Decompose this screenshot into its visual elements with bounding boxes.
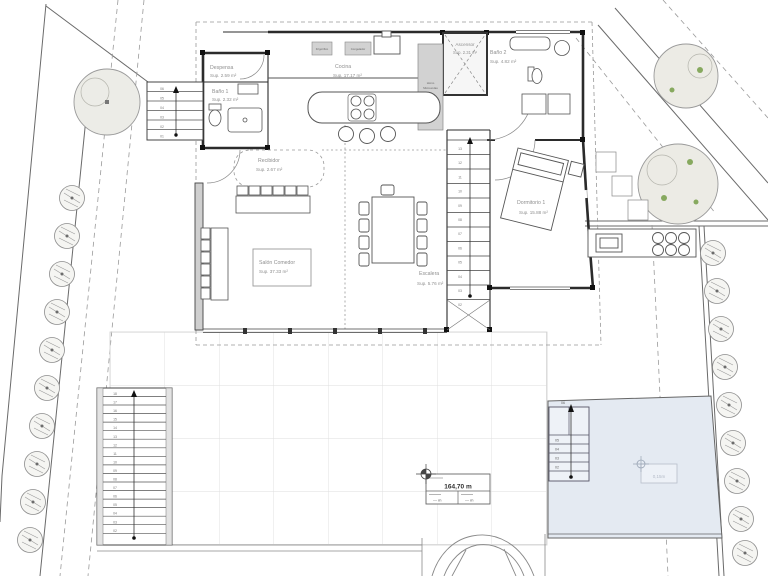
kitchen-island [308,92,440,144]
svg-text:04: 04 [458,275,462,279]
shrub-icon [25,452,50,477]
shrub-icon [713,355,738,380]
shrub-icon [721,431,746,456]
entry-stairs: 060504030201 [147,82,203,140]
svg-text:03: 03 [113,520,117,524]
garden-stairs: 1817161514131211100908070605040302 [97,388,172,545]
shrub-icon [50,262,75,287]
svg-text:Sup. 2.32 m²: Sup. 2.32 m² [212,97,239,102]
svg-text:Sup. 37.33 m²: Sup. 37.33 m² [259,269,288,274]
room-label-bano2: Baño 2 Sup. 4.82 m² [490,50,517,64]
svg-text:12: 12 [113,443,117,447]
shrub-icon [729,507,754,532]
sink-unit [374,36,400,54]
stool [339,127,354,142]
svg-text:Escalera: Escalera [419,271,439,277]
tree-icon [654,44,718,108]
tree-icon [74,69,140,135]
svg-text:Sup. 2.67 m²: Sup. 2.67 m² [256,167,283,172]
svg-text:Sup. 4.82 m²: Sup. 4.82 m² [490,59,517,64]
shrub-icon [60,186,85,211]
svg-text:14: 14 [113,426,117,430]
svg-text:13: 13 [458,147,462,151]
shrub-icon [717,393,742,418]
svg-text:02: 02 [555,466,559,470]
freezer-label: Congelador [351,47,366,51]
room-label-salon: Salón Comedor Sup. 37.33 m² [253,249,311,286]
svg-text:07: 07 [458,232,462,236]
svg-text:05: 05 [113,503,117,507]
shrub-icon [21,490,46,515]
shrub-icon [725,469,750,494]
shrub-icon [18,528,43,553]
pool-step-top-number: 06 [561,401,565,405]
room-label-bano1: Baño 1 Sup. 2.32 m² [212,89,239,102]
stool [381,127,396,142]
exterior-step [628,200,648,220]
svg-text:08: 08 [113,478,117,482]
svg-text:10: 10 [458,190,462,194]
svg-text:17: 17 [113,401,117,405]
shrub-icon [701,241,726,266]
svg-text:Salón Comedor: Salón Comedor [259,260,295,266]
sofa-a [236,186,310,213]
shrub-icon [705,279,730,304]
room-label-despensa: Despensa Sup. 2.59 m² [210,65,237,78]
shrub-icon [30,414,55,439]
svg-text:06: 06 [113,495,117,499]
svg-text:15: 15 [113,418,117,422]
floor-plan-drawing: 05040302 06 0,15m [0,0,768,576]
pool: 05040302 06 0,15m [548,396,722,538]
shrub-icon [709,317,734,342]
svg-text:06: 06 [160,87,164,91]
svg-text:Baño 1: Baño 1 [212,89,229,95]
bathroom-2-fixtures [510,37,570,114]
svg-text:05: 05 [555,439,559,443]
elevation-sub-right: — m [465,498,474,503]
kitchen: Frigorífico Congelador Horno Microondas [268,31,443,144]
svg-text:Sup. 17.17 m²: Sup. 17.17 m² [333,73,362,78]
stool [360,129,375,144]
svg-text:04: 04 [113,512,117,516]
svg-text:09: 09 [113,469,117,473]
room-label-cocina: Cocina Sup. 17.17 m² [333,64,362,78]
svg-text:Baño 2: Baño 2 [490,50,507,56]
svg-text:09: 09 [458,204,462,208]
svg-text:10: 10 [113,460,117,464]
room-label-escalera: Escalera Sup. 5.76 m² [417,271,444,286]
tree-icon [638,144,718,224]
svg-text:13: 13 [113,435,117,439]
bed [501,148,584,234]
svg-text:Cocina: Cocina [335,64,351,70]
floor-plan-page: 05040302 06 0,15m [0,0,768,576]
svg-text:03: 03 [555,457,559,461]
fridge-label: Frigorífico [316,47,329,51]
svg-text:12: 12 [458,161,462,165]
shrub-icon [35,376,60,401]
shrub-icon [45,300,70,325]
exterior-step [596,152,616,172]
svg-text:05: 05 [458,261,462,265]
svg-text:Dormitorio 1: Dormitorio 1 [517,200,545,206]
svg-text:03: 03 [160,116,164,120]
svg-text:Sup. 2.31 m²: Sup. 2.31 m² [453,50,478,55]
svg-text:Sup. 2.59 m²: Sup. 2.59 m² [210,73,237,78]
terrain-elevation-value: 164,70 m [444,484,472,491]
room-label-recibidor: Recibidor Sup. 2.67 m² [256,158,283,172]
interior-stairs: 131211100908070605040302 [447,137,490,330]
exterior-step [612,176,632,196]
svg-text:11: 11 [458,175,462,179]
pool-elevation-value: 0,15m [653,474,666,479]
oven-label-line2: Microondas [423,86,438,90]
sofa-b [201,228,228,300]
svg-text:04: 04 [555,448,559,452]
svg-text:02: 02 [113,529,117,533]
svg-text:16: 16 [113,409,117,413]
shrub-icon [55,224,80,249]
svg-text:07: 07 [113,486,117,490]
svg-text:Ascensor: Ascensor [455,42,475,47]
svg-text:11: 11 [113,452,117,456]
svg-text:18: 18 [113,392,117,396]
ne-garden [638,44,718,224]
svg-text:05: 05 [160,97,164,101]
svg-text:04: 04 [160,106,164,110]
svg-text:Recibidor: Recibidor [258,158,280,164]
shrub-icon [40,338,65,363]
elevation-sub-left: — m [433,498,442,503]
oven-label-line1: Horno [427,81,435,85]
svg-text:Despensa: Despensa [210,65,233,71]
svg-text:08: 08 [458,218,462,222]
pool-stairs: 05040302 06 [549,401,589,481]
svg-text:02: 02 [458,303,462,307]
svg-text:06: 06 [458,246,462,250]
shrub-icon [733,541,758,566]
svg-text:02: 02 [160,125,164,129]
svg-text:03: 03 [458,289,462,293]
dining-table [359,185,427,266]
svg-text:01: 01 [160,135,164,139]
svg-text:Sup. 15.88 m²: Sup. 15.88 m² [519,210,548,215]
svg-text:Sup. 5.76 m²: Sup. 5.76 m² [417,281,444,286]
